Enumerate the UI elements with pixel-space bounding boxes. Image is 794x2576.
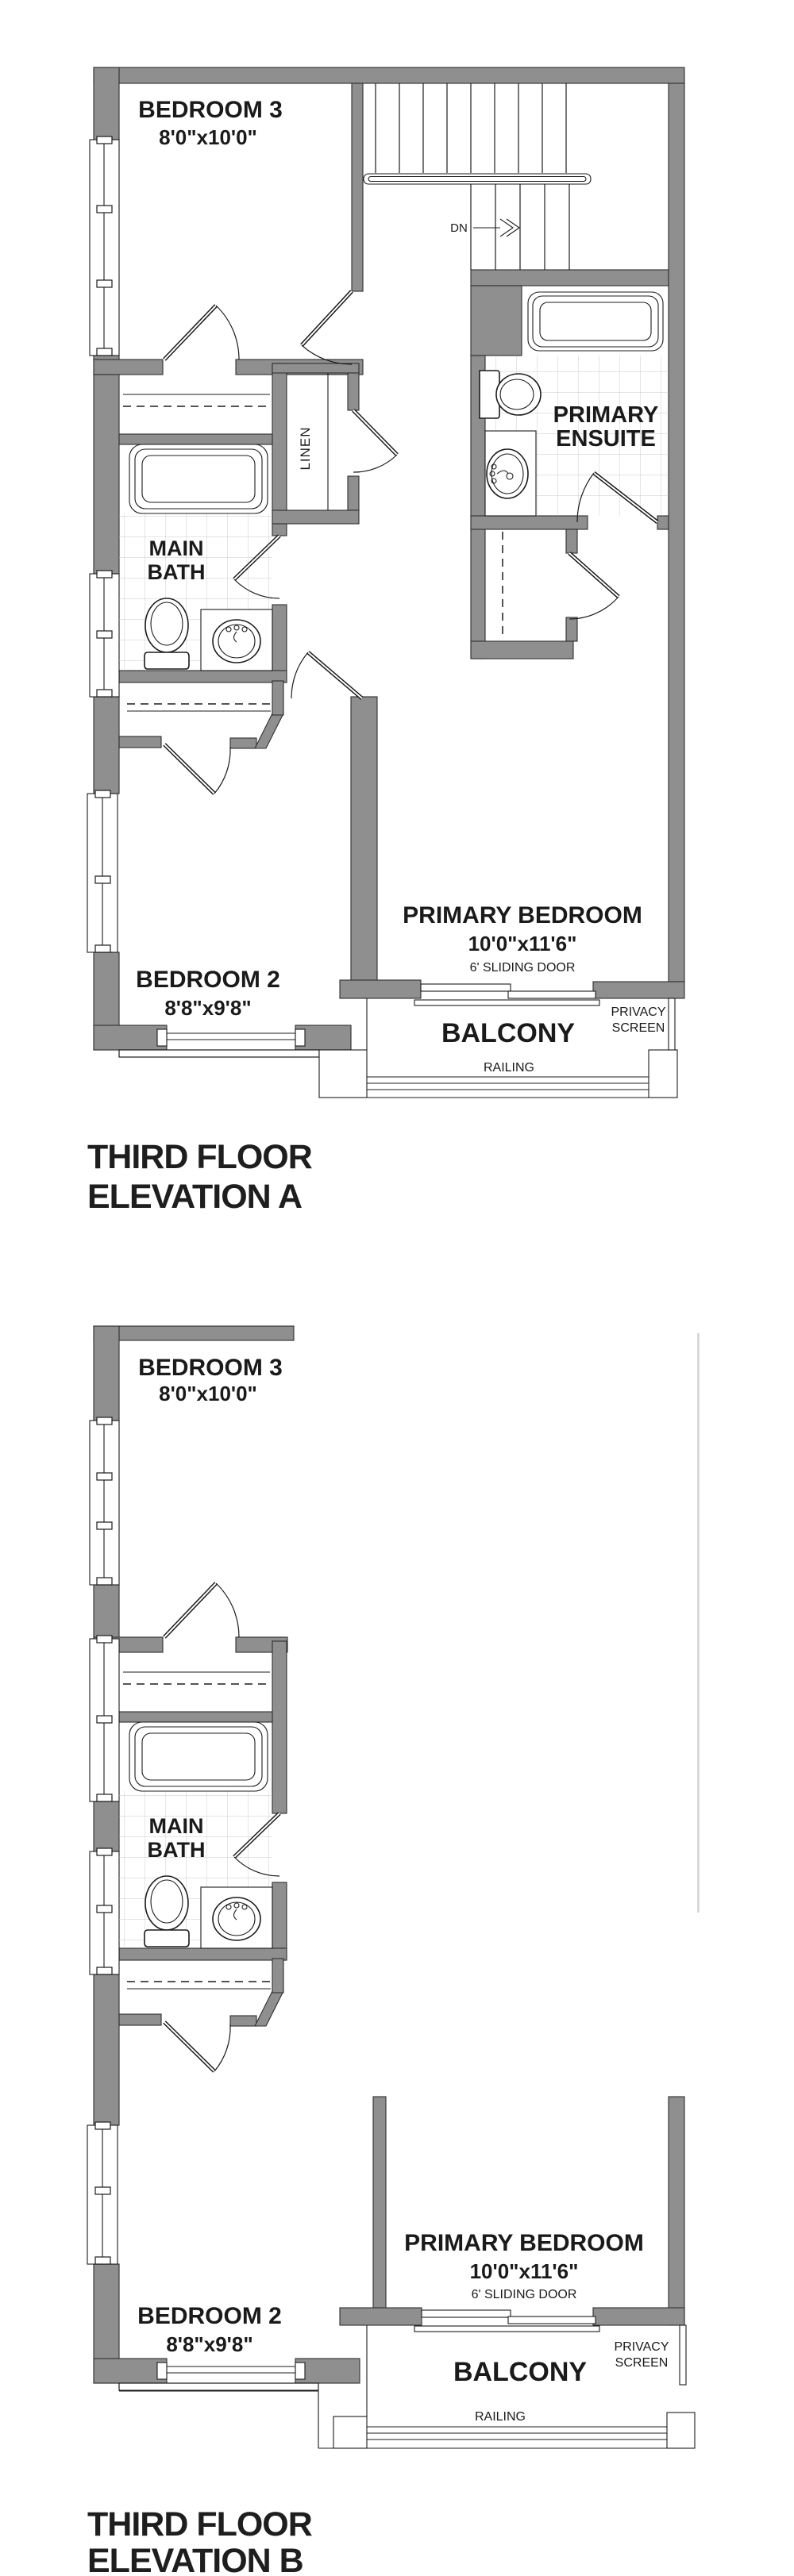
plan-a-title-line1: THIRD FLOOR [87, 1138, 313, 1176]
bedroom3-dims: 8'0"x10'0" [159, 1382, 257, 1405]
stairs-down-label: DN [450, 221, 468, 235]
bathtub [528, 292, 663, 351]
closet [127, 704, 271, 711]
bedroom3-dims: 8'0"x10'0" [159, 125, 257, 149]
primary-bedroom-label: PRIMARY BEDROOM [403, 902, 642, 929]
balcony-label: BALCONY [441, 1018, 575, 1048]
privacy-label-line1: PRIVACY [611, 1005, 665, 1019]
privacy-label-line2: SCREEN [612, 1021, 665, 1035]
main-bath: MAIN BATH [119, 1722, 279, 1948]
sink [485, 431, 536, 516]
bedroom2-label: BEDROOM 2 [137, 2303, 282, 2329]
bedroom3-label: BEDROOM 3 [138, 1355, 283, 1381]
window [87, 2122, 118, 2264]
window [90, 1636, 119, 1801]
privacy-screen [669, 998, 675, 1050]
plan-a-title-line2: ELEVATION A [87, 1178, 302, 1216]
window [90, 571, 119, 697]
door-swing [164, 1583, 239, 1637]
railing-label: RAILING [484, 1061, 534, 1075]
closet [123, 394, 270, 406]
floor-plan-canvas: DN [0, 0, 794, 2576]
ensuite-label-line1: PRIMARY [553, 402, 659, 428]
privacy-label-line1: PRIVACY [614, 2340, 669, 2354]
sliding-door [414, 984, 599, 1005]
bedroom2-dims: 8'8"x9'8" [166, 2332, 252, 2356]
door-swing [164, 306, 239, 359]
railing [318, 2427, 695, 2448]
window [90, 1417, 119, 1585]
closet [503, 532, 619, 639]
main-bath-label-line2: BATH [148, 1838, 206, 1862]
stairs: DN [364, 83, 591, 270]
door-swing [302, 291, 352, 364]
primary-bedroom-dims: 10'0"x11'6" [470, 2259, 579, 2283]
door-swing [353, 410, 397, 472]
toilet [145, 598, 189, 669]
primary-bedroom-dims: 10'0"x11'6" [468, 932, 577, 955]
sliding-door-note: 6' SLIDING DOOR [470, 961, 576, 975]
closet [123, 1672, 270, 1684]
railing-label: RAILING [475, 2410, 526, 2424]
ensuite-label-line2: ENSUITE [556, 426, 656, 452]
down-arrow-icon [473, 219, 519, 236]
bedroom2-label: BEDROOM 2 [136, 967, 280, 993]
door-swing [164, 744, 230, 794]
plan-b-title-line1: THIRD FLOOR [87, 2505, 313, 2543]
main-bath: MAIN BATH [119, 444, 279, 671]
window [87, 790, 118, 952]
cut-line [697, 1333, 700, 1913]
toilet [145, 1876, 189, 1947]
plan-b-title-line2: ELEVATION B [87, 2542, 303, 2576]
sliding-door [414, 2310, 599, 2332]
bathtub [129, 1722, 268, 1791]
balcony: BALCONY PRIVACY SCREEN RAILING [319, 998, 677, 1098]
handrail [364, 174, 591, 184]
closet [127, 1982, 271, 1989]
privacy-label-line2: SCREEN [615, 2356, 669, 2370]
door-swing [291, 652, 362, 698]
window [90, 1848, 119, 1974]
sink [201, 1887, 272, 1948]
sliding-door-note: 6' SLIDING DOOR [472, 2288, 577, 2301]
door-swing [569, 553, 619, 619]
linen-label: LINEN [298, 426, 313, 470]
sink [201, 609, 272, 671]
main-bath-label-line2: BATH [148, 560, 206, 584]
plan-elevation-a: DN [87, 67, 684, 1216]
plan-elevation-b: BEDROOM 3 8'0"x10'0" MAIN BATH [87, 1326, 700, 2576]
door-swing [164, 2022, 230, 2071]
privacy-screen [680, 2325, 686, 2385]
balcony-label: BALCONY [453, 2357, 587, 2387]
window [90, 136, 119, 356]
bathtub [129, 444, 268, 513]
toilet [480, 371, 541, 418]
bedroom3-label: BEDROOM 3 [138, 97, 283, 123]
bedroom2-dims: 8'8"x9'8" [164, 996, 251, 1020]
railing [319, 1077, 677, 1098]
main-bath-label-line1: MAIN [149, 536, 204, 560]
main-bath-label-line1: MAIN [149, 1814, 204, 1838]
primary-bedroom-label: PRIMARY BEDROOM [404, 2230, 644, 2256]
